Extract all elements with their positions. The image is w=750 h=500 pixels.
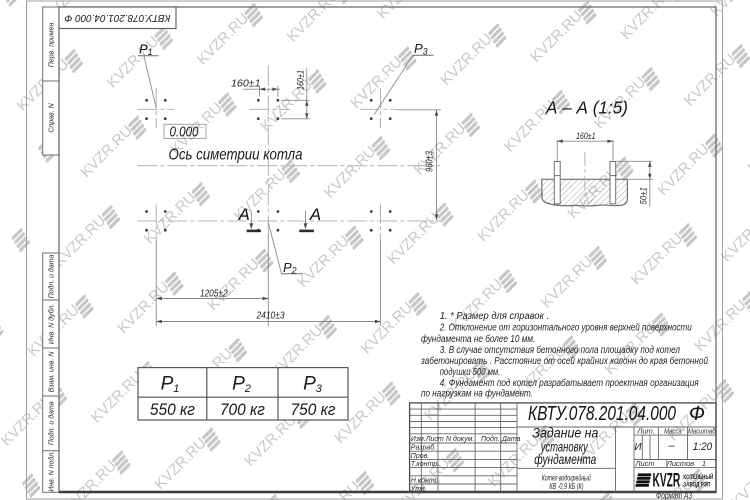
svg-text:1205±2: 1205±2: [200, 288, 228, 300]
svg-text:160±1: 160±1: [576, 131, 596, 142]
svg-text:50±1: 50±1: [639, 187, 650, 204]
svg-text:KVZR: KVZR: [653, 470, 681, 492]
svg-text:1:20: 1:20: [693, 441, 713, 453]
svg-text:КОТЕЛЬНЫЙ: КОТЕЛЬНЫЙ: [683, 472, 713, 481]
svg-text:Формат А3: Формат А3: [656, 491, 692, 500]
svg-text:Лист: Лист: [634, 459, 654, 468]
svg-text:Перв. примен.: Перв. примен.: [48, 21, 55, 68]
svg-text:Ось симетрии котла: Ось симетрии котла: [169, 146, 303, 163]
svg-text:1. * Размер для справок .: 1. * Размер для справок .: [440, 311, 550, 322]
svg-text:700 кг: 700 кг: [220, 400, 265, 419]
svg-text:по нагрузкам на фундамент.: по нагрузкам на фундамент.: [421, 388, 533, 400]
svg-text:550 кг: 550 кг: [150, 400, 195, 419]
svg-text:2. Отклонение от горизонтально: 2. Отклонение от горизонтального уровня …: [439, 323, 692, 334]
svg-text:160±1: 160±1: [231, 78, 261, 90]
svg-text:2410±3: 2410±3: [256, 310, 285, 322]
svg-text:И: И: [634, 442, 642, 453]
svg-text:4. Фундамент под котел разраба: 4. Фундамент под котел разрабатывает про…: [440, 377, 700, 389]
svg-text:ЗАВОД РЭП: ЗАВОД РЭП: [683, 481, 710, 488]
svg-text:Ф: Ф: [689, 403, 705, 425]
svg-text:160±1: 160±1: [296, 70, 307, 90]
svg-text:Масштаб: Масштаб: [688, 426, 716, 435]
svg-text:Подп. и дата: Подп. и дата: [47, 401, 55, 445]
svg-text:Пров.: Пров.: [411, 453, 430, 460]
svg-text:фундамента: фундамента: [534, 452, 596, 467]
svg-text:Масса: Масса: [664, 426, 682, 435]
svg-text:фундамента не более 10 мм.: фундамента не более 10 мм.: [421, 333, 535, 345]
svg-text:960±3: 960±3: [425, 151, 436, 172]
svg-text:1: 1: [702, 459, 706, 468]
svg-text:КВТУ.078.201.04.000 Ф: КВТУ.078.201.04.000 Ф: [65, 12, 171, 24]
svg-text:А: А: [309, 205, 321, 224]
svg-text:Дата: Дата: [501, 436, 521, 443]
svg-text:Инв. N подл.: Инв. N подл.: [47, 451, 55, 492]
svg-text:0.000: 0.000: [170, 125, 199, 141]
svg-text:Разраб.: Разраб.: [411, 444, 436, 452]
svg-text:Лит.: Лит.: [636, 426, 655, 435]
svg-text:Взам. инв. N: Взам. инв. N: [48, 351, 55, 393]
svg-text:КВ -0,9 КБ (К): КВ -0,9 КБ (К): [549, 481, 583, 491]
svg-text:Подп. и дата: Подп. и дата: [47, 254, 55, 298]
svg-text:Т.контр.: Т.контр.: [411, 461, 439, 468]
svg-text:забетонировать . Расстояние от: забетонировать . Расстояние от осей край…: [420, 355, 708, 367]
svg-text:подушки 500 мм.: подушки 500 мм.: [440, 367, 501, 378]
svg-text:N докум.: N докум.: [446, 435, 474, 443]
svg-text:Листов: Листов: [666, 459, 694, 468]
svg-text:Изм.Лист: Изм.Лист: [411, 436, 444, 443]
svg-text:КВТУ.078.201.04.000: КВТУ.078.201.04.000: [528, 403, 676, 425]
svg-text:Утв.: Утв.: [410, 486, 427, 493]
svg-text:750 кг: 750 кг: [291, 400, 336, 419]
svg-text:Инв. N дубл.: Инв. N дубл.: [47, 304, 55, 345]
svg-text:А – А (1:5): А – А (1:5): [545, 98, 628, 118]
svg-text:А: А: [238, 205, 250, 224]
svg-text:3. В случае отсутствия бетонно: 3. В случае отсутствия бетонного пола пл…: [440, 344, 681, 356]
svg-text:Справ. N: Справ. N: [48, 102, 55, 132]
svg-text:Подп.: Подп.: [481, 435, 500, 443]
svg-text:Н.контр.: Н.контр.: [411, 478, 441, 485]
svg-text:–: –: [668, 440, 676, 452]
